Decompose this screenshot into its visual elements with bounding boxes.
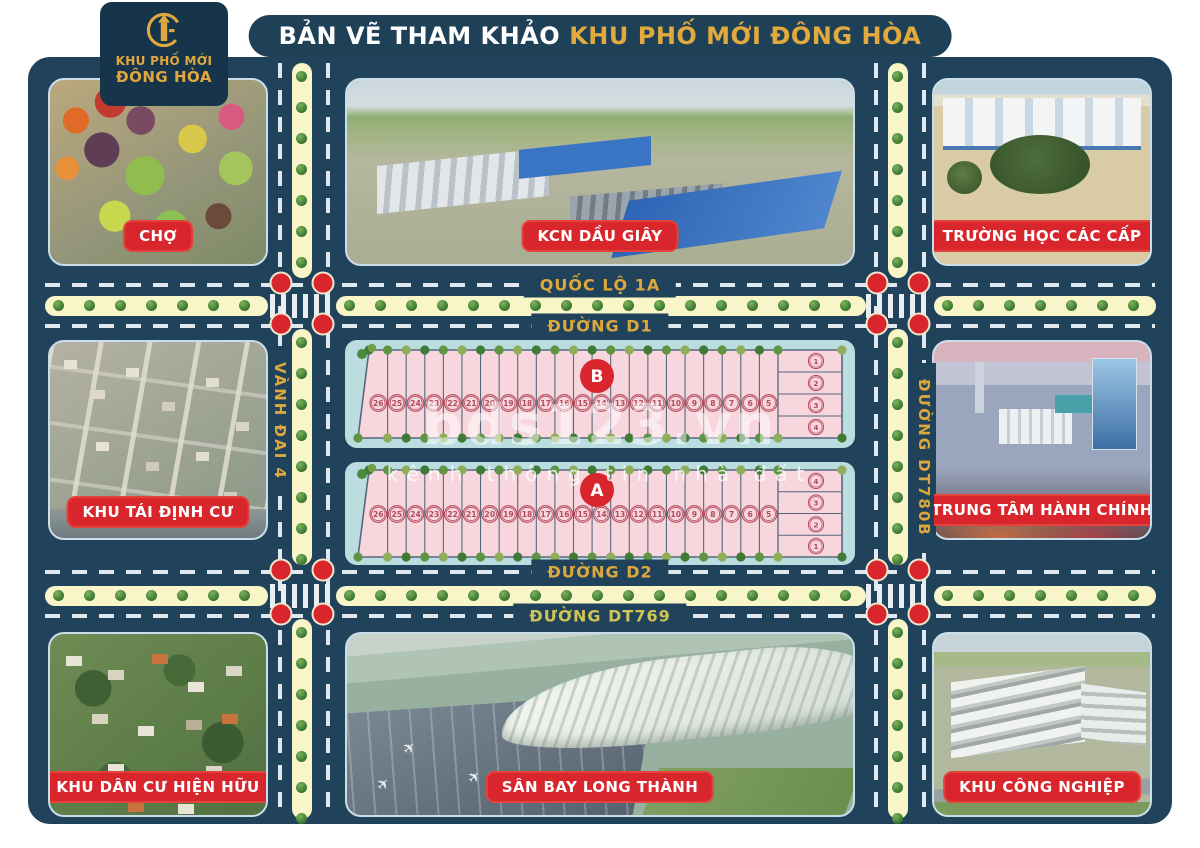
photo-kcn-dau-giay: KCN DẦU GIÂY [345, 78, 855, 266]
tree-icon [973, 300, 984, 311]
tree-canopy [947, 161, 982, 194]
road-median [292, 63, 312, 278]
block-plan-A: 2625242322212019181716151413121110987654… [345, 462, 855, 565]
svg-text:17: 17 [540, 510, 551, 519]
tree-icon [375, 300, 386, 311]
tree-icon [239, 300, 250, 311]
tree-icon [654, 590, 665, 601]
tree-icon [892, 257, 903, 268]
logo-monogram-icon [142, 8, 186, 52]
svg-text:13: 13 [615, 399, 626, 408]
tree-icon [239, 590, 250, 601]
map-canvas: CHỢ KCN DẦU GIÂY TRƯỜNG HỌC CÁC CẤP KHU … [28, 57, 1172, 824]
intersection-dot [312, 559, 335, 582]
svg-text:5: 5 [766, 510, 771, 519]
svg-text:10: 10 [670, 399, 681, 408]
label-school: TRƯỜNG HỌC CÁC CẤP [932, 220, 1152, 252]
logo-text-line2: ĐÔNG HÒA [116, 68, 212, 86]
svg-text:26: 26 [373, 399, 384, 408]
svg-text:13: 13 [615, 510, 626, 519]
intersection-dot [270, 603, 293, 626]
tree-icon [344, 300, 355, 311]
intersection-dot [312, 272, 335, 295]
green-strip [934, 802, 1150, 815]
road-lane-quoc-lo-1a: QUỐC LỘ 1A [45, 283, 1155, 287]
tree-icon [892, 71, 903, 82]
tree-icon [296, 133, 307, 144]
road-median [45, 296, 268, 316]
tree-icon [809, 590, 820, 601]
svg-text:4: 4 [813, 423, 818, 432]
svg-text:20: 20 [485, 399, 496, 408]
tree-icon [296, 627, 307, 638]
tree-icon [296, 720, 307, 731]
road-lane-duong-dt769: ĐƯỜNG DT769 [45, 614, 1155, 618]
svg-text:3: 3 [813, 401, 818, 410]
intersection-dot [866, 603, 889, 626]
logo-text-line1: KHU PHỐ MỚI [116, 54, 213, 68]
svg-text:2: 2 [813, 379, 818, 388]
tree-icon [778, 590, 789, 601]
svg-text:12: 12 [633, 510, 644, 519]
tree-icon [1035, 590, 1046, 601]
tree-icon [468, 590, 479, 601]
intersection-dot [908, 603, 931, 626]
tree-icon [747, 590, 758, 601]
road-label-duong-dt780b: ĐƯỜNG DT780B [912, 363, 936, 553]
tree-icon [296, 751, 307, 762]
photo-industrial: KHU CÔNG NGHIỆP [932, 632, 1152, 817]
tree-icon [654, 300, 665, 311]
tree-icon [499, 300, 510, 311]
tree-icon [623, 590, 634, 601]
photo-airport: SÂN BAY LONG THÀNH [345, 632, 855, 817]
svg-text:10: 10 [670, 510, 681, 519]
road-label-duong-d1: ĐƯỜNG D1 [531, 314, 668, 339]
tree-icon [296, 368, 307, 379]
svg-text:8: 8 [710, 510, 715, 519]
svg-text:11: 11 [652, 510, 663, 519]
svg-text:A: A [590, 481, 604, 501]
svg-text:16: 16 [559, 399, 570, 408]
tree-icon [892, 399, 903, 410]
svg-text:B: B [591, 367, 604, 387]
warehouse-roofs [1081, 684, 1146, 747]
tree-icon [84, 590, 95, 601]
tree-icon [1128, 590, 1139, 601]
road-median [888, 619, 908, 819]
tree-icon [296, 813, 307, 824]
intersection-dot [908, 272, 931, 295]
svg-text:5: 5 [766, 399, 771, 408]
tree-icon [716, 300, 727, 311]
tree-icon [468, 300, 479, 311]
tree-icon [115, 590, 126, 601]
plot-block-B: 2625242322212019181716151413121110987651… [345, 340, 855, 448]
road-lane [326, 63, 330, 818]
photo-admin-center: TRUNG TÂM HÀNH CHÍNH [932, 340, 1152, 540]
tree-icon [84, 300, 95, 311]
svg-text:22: 22 [447, 399, 458, 408]
svg-text:15: 15 [578, 399, 589, 408]
tree-icon [296, 164, 307, 175]
tree-icon [892, 782, 903, 793]
tree-icon [892, 492, 903, 503]
tree-icon [499, 590, 510, 601]
block-plan-B: 2625242322212019181716151413121110987651… [345, 340, 855, 448]
tree-icon [146, 300, 157, 311]
intersection-dot [908, 313, 931, 336]
intersection-dot [866, 272, 889, 295]
svg-text:22: 22 [447, 510, 458, 519]
tree-icon [892, 164, 903, 175]
road-label-quoc-lo-1a: QUỐC LỘ 1A [524, 273, 676, 298]
photo-school: TRƯỜNG HỌC CÁC CẤP [932, 78, 1152, 266]
tree-icon [892, 368, 903, 379]
svg-text:1: 1 [813, 357, 818, 366]
tree-icon [1004, 590, 1015, 601]
brand-logo: KHU PHỐ MỚI ĐÔNG HÒA [100, 2, 228, 106]
svg-text:25: 25 [392, 399, 403, 408]
tree-icon [892, 720, 903, 731]
house-rooftops [64, 360, 77, 369]
tree-icon [1066, 300, 1077, 311]
label-admin-center: TRUNG TÂM HÀNH CHÍNH [932, 494, 1152, 526]
tree-icon [840, 590, 851, 601]
tree-icon [530, 590, 541, 601]
intersection-dot [312, 603, 335, 626]
tree-icon [296, 782, 307, 793]
tree-icon [530, 300, 541, 311]
svg-text:6: 6 [747, 510, 752, 519]
road-lane-duong-d1: ĐƯỜNG D1 [45, 324, 1155, 328]
tree-icon [1004, 300, 1015, 311]
intersection-dot [270, 272, 293, 295]
gov-building [999, 409, 1072, 444]
tree-icon [1128, 300, 1139, 311]
svg-text:3: 3 [813, 499, 818, 508]
svg-text:23: 23 [429, 510, 440, 519]
photo-market: CHỢ [48, 78, 268, 266]
svg-text:26: 26 [373, 510, 384, 519]
label-industrial: KHU CÔNG NGHIỆP [943, 771, 1141, 803]
svg-text:24: 24 [410, 399, 421, 408]
intersection-dot [270, 313, 293, 336]
road-median [888, 329, 908, 565]
tree-icon [892, 226, 903, 237]
svg-text:2: 2 [813, 520, 818, 529]
warehouse-roofs [951, 666, 1085, 758]
road-lane-duong-d2: ĐƯỜNG D2 [45, 570, 1155, 574]
road-median [292, 619, 312, 819]
tree-icon [592, 590, 603, 601]
tree-icon [115, 300, 126, 311]
tree-icon [1097, 590, 1108, 601]
glass-tower [1092, 358, 1137, 450]
label-market: CHỢ [123, 220, 193, 252]
tree-icon [53, 300, 64, 311]
svg-text:1: 1 [813, 542, 818, 551]
svg-text:7: 7 [729, 399, 734, 408]
tree-icon [146, 590, 157, 601]
road-median [934, 586, 1156, 606]
tree-icon [716, 590, 727, 601]
title-highlight: KHU PHỐ MỚI ĐÔNG HÒA [569, 22, 921, 50]
road-median [292, 329, 312, 565]
poster: BẢN VẼ THAM KHẢO KHU PHỐ MỚI ĐÔNG HÒA KH… [0, 0, 1200, 848]
intersection-dot [908, 559, 931, 582]
road-median [45, 586, 268, 606]
svg-text:9: 9 [692, 399, 697, 408]
tree-icon [892, 751, 903, 762]
tree-icon [177, 590, 188, 601]
tree-icon [1035, 300, 1046, 311]
svg-text:8: 8 [710, 399, 715, 408]
tree-icon [592, 300, 603, 311]
svg-text:19: 19 [503, 399, 514, 408]
block-badge-B: B [580, 359, 614, 393]
tree-icon [53, 590, 64, 601]
svg-text:23: 23 [429, 399, 440, 408]
road-label-duong-d2: ĐƯỜNG D2 [531, 560, 668, 585]
plot-block-A: 2625242322212019181716151413121110987654… [345, 462, 855, 565]
tree-icon [892, 133, 903, 144]
block-badge-A: A [580, 473, 614, 507]
tree-icon [437, 590, 448, 601]
tree-icon [296, 102, 307, 113]
tree-icon [942, 300, 953, 311]
tree-icon [296, 492, 307, 503]
svg-text:21: 21 [466, 510, 477, 519]
tree-icon [840, 300, 851, 311]
svg-text:12: 12 [633, 399, 644, 408]
tree-icon [892, 554, 903, 565]
house-rooftops [66, 656, 82, 666]
tree-icon [296, 195, 307, 206]
spire [975, 362, 984, 413]
tree-icon [406, 590, 417, 601]
tree-icon [296, 430, 307, 441]
intersection-dot [312, 313, 335, 336]
road-lane-duong-dt780b: ĐƯỜNG DT780B [922, 63, 926, 818]
tree-icon [296, 257, 307, 268]
tree-icon [892, 813, 903, 824]
intersection-dot [866, 559, 889, 582]
svg-text:15: 15 [578, 510, 589, 519]
label-airport: SÂN BAY LONG THÀNH [486, 771, 714, 803]
tree-icon [892, 689, 903, 700]
tree-icon [942, 590, 953, 601]
label-kcn-dau-giay: KCN DẦU GIÂY [522, 220, 679, 252]
tree-icon [1097, 300, 1108, 311]
road-median [888, 63, 908, 278]
svg-text:16: 16 [559, 510, 570, 519]
photo-residential: KHU DÂN CƯ HIỆN HỮU [48, 632, 268, 817]
tree-icon [296, 658, 307, 669]
tree-icon [892, 430, 903, 441]
tree-icon [778, 300, 789, 311]
tree-icon [437, 300, 448, 311]
tree-icon [208, 300, 219, 311]
tree-icon [177, 300, 188, 311]
tree-icon [296, 461, 307, 472]
tree-icon [892, 195, 903, 206]
road-label-duong-dt769: ĐƯỜNG DT769 [513, 604, 686, 629]
svg-text:19: 19 [503, 510, 514, 519]
tree-icon [561, 590, 572, 601]
tree-icon [892, 102, 903, 113]
photo-resettlement: KHU TÁI ĐỊNH CƯ [48, 340, 268, 540]
svg-text:7: 7 [729, 510, 734, 519]
tree-icon [406, 300, 417, 311]
tree-icon [296, 523, 307, 534]
terminal-roof [496, 636, 855, 759]
tree-icon [892, 337, 903, 348]
label-resettlement: KHU TÁI ĐỊNH CƯ [66, 496, 249, 528]
svg-text:25: 25 [392, 510, 403, 519]
road-lane-vanh-dai-4: VÀNH ĐAI 4 [278, 63, 282, 818]
tree-icon [296, 71, 307, 82]
tree-icon [747, 300, 758, 311]
road-median [934, 296, 1156, 316]
tree-icon [296, 689, 307, 700]
tree-icon [892, 523, 903, 534]
intersection-dot [270, 559, 293, 582]
svg-text:14: 14 [596, 399, 607, 408]
tree-icon [1066, 590, 1077, 601]
svg-text:18: 18 [522, 399, 533, 408]
tree-icon [561, 300, 572, 311]
svg-text:18: 18 [522, 510, 533, 519]
tree-icon [375, 590, 386, 601]
tree-icon [685, 590, 696, 601]
svg-text:6: 6 [747, 399, 752, 408]
road-lane [874, 63, 878, 818]
factory-roof-blue [519, 136, 651, 179]
tree-icon [973, 590, 984, 601]
svg-text:11: 11 [652, 399, 663, 408]
svg-text:20: 20 [485, 510, 496, 519]
teal-roof [1055, 395, 1094, 413]
tree-icon [892, 461, 903, 472]
tree-icon [296, 399, 307, 410]
road-label-vanh-dai-4: VÀNH ĐAI 4 [268, 346, 292, 496]
tree-icon [892, 627, 903, 638]
tree-icon [296, 337, 307, 348]
page-title: BẢN VẼ THAM KHẢO KHU PHỐ MỚI ĐÔNG HÒA [249, 15, 952, 57]
title-prefix: BẢN VẼ THAM KHẢO [279, 22, 561, 50]
tree-icon [344, 590, 355, 601]
label-residential: KHU DÂN CƯ HIỆN HỮU [48, 771, 268, 803]
svg-text:4: 4 [813, 477, 818, 486]
tree-icon [623, 300, 634, 311]
tree-icon [809, 300, 820, 311]
tree-icon [892, 658, 903, 669]
svg-text:14: 14 [596, 510, 607, 519]
svg-text:24: 24 [410, 510, 421, 519]
tree-icon [208, 590, 219, 601]
svg-text:9: 9 [692, 510, 697, 519]
intersection-dot [866, 313, 889, 336]
tree-canopy [990, 135, 1089, 194]
svg-text:21: 21 [466, 399, 477, 408]
svg-text:17: 17 [540, 399, 551, 408]
tree-icon [296, 226, 307, 237]
tree-icon [296, 554, 307, 565]
tree-icon [685, 300, 696, 311]
